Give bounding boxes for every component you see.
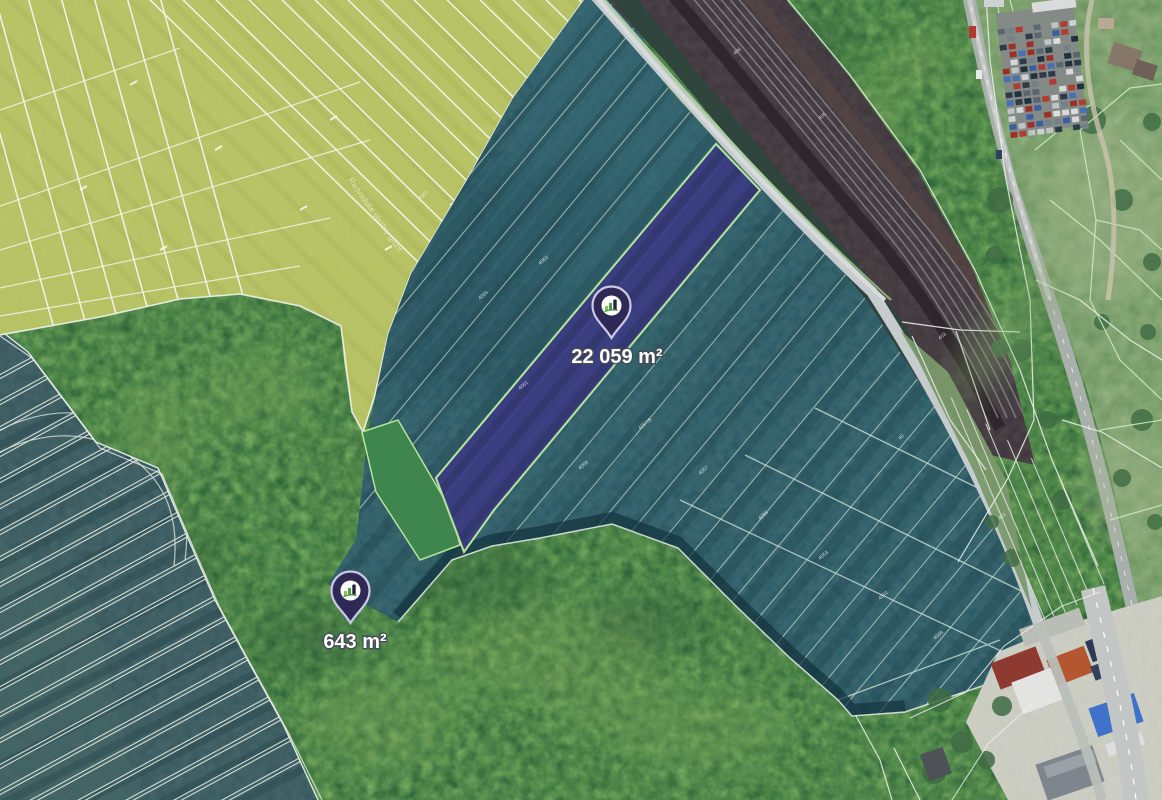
svg-text:643 m²: 643 m² (323, 631, 387, 653)
svg-text:22 059 m²: 22 059 m² (571, 346, 663, 368)
